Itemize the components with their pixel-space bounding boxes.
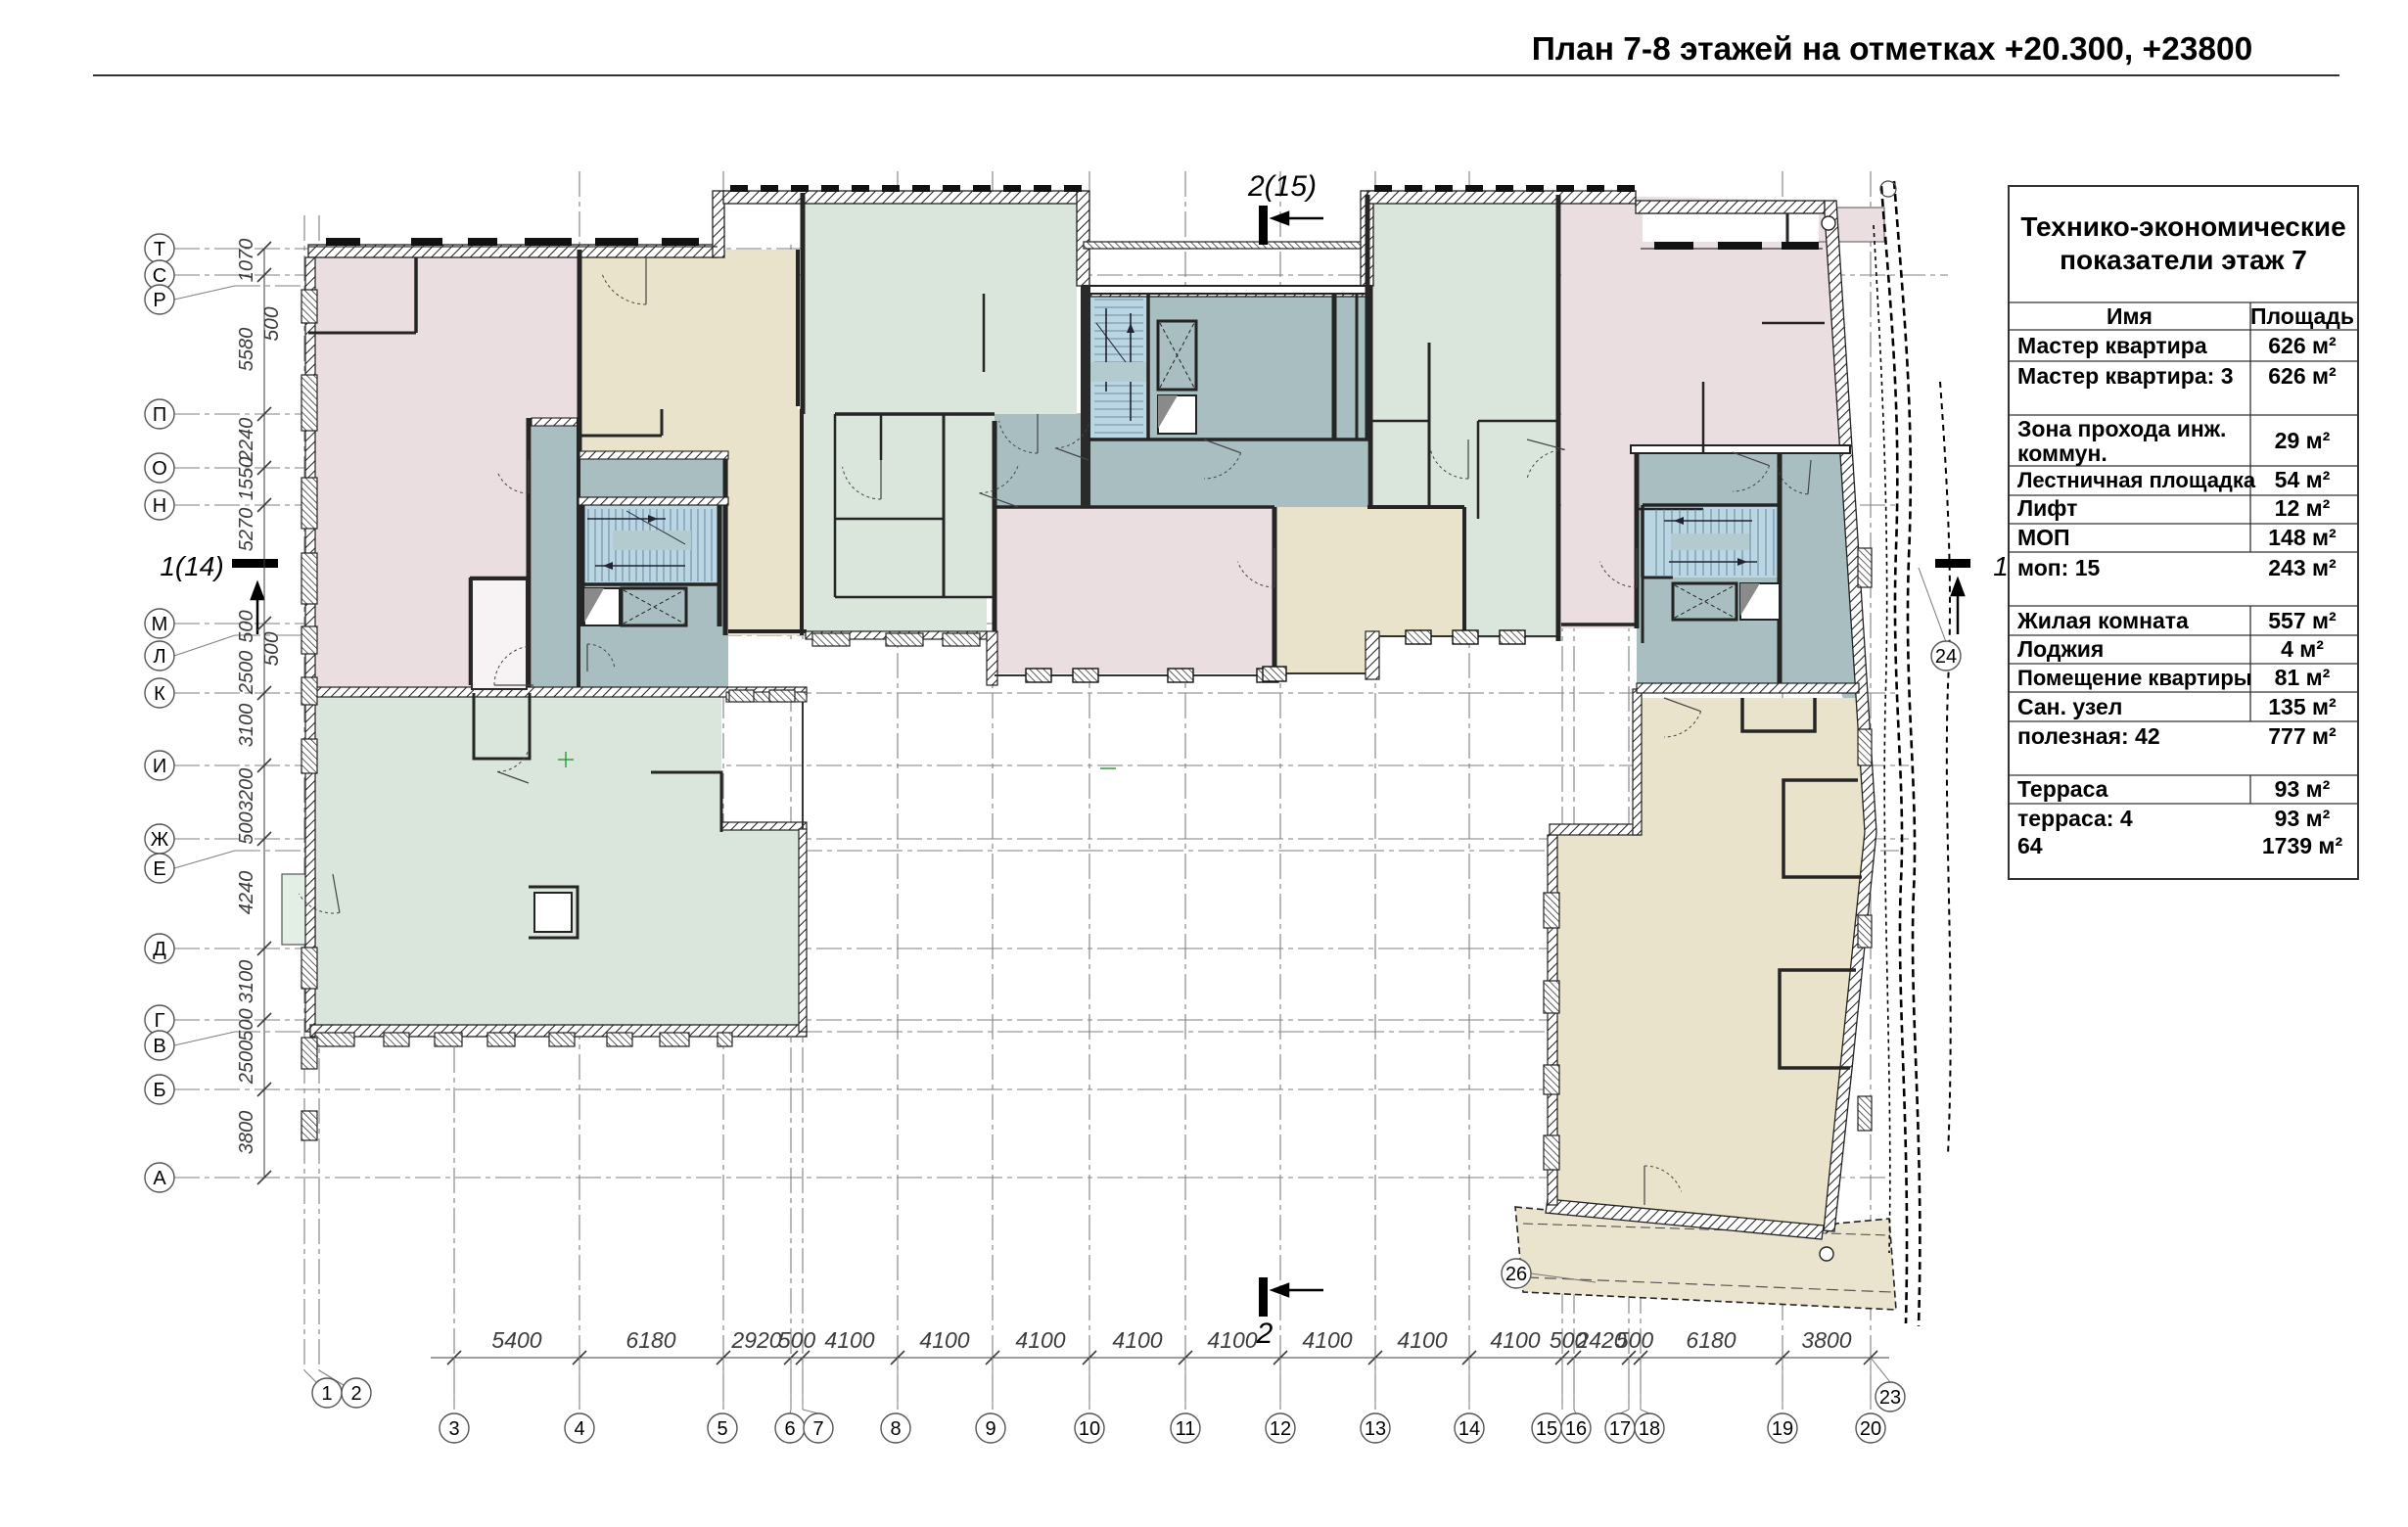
svg-text:5580: 5580 bbox=[236, 328, 257, 372]
svg-text:показатели этаж 7: показатели этаж 7 bbox=[2060, 245, 2307, 275]
svg-text:6: 6 bbox=[784, 1418, 795, 1440]
svg-text:500: 500 bbox=[260, 631, 283, 666]
svg-text:2: 2 bbox=[1256, 1318, 1273, 1350]
svg-text:29 м²: 29 м² bbox=[2275, 428, 2331, 453]
svg-text:3200: 3200 bbox=[236, 768, 257, 812]
svg-text:4100: 4100 bbox=[1112, 1327, 1162, 1353]
svg-text:моп: 15: моп: 15 bbox=[2017, 555, 2100, 580]
svg-text:12 м²: 12 м² bbox=[2275, 495, 2331, 521]
svg-text:2240: 2240 bbox=[236, 418, 257, 463]
svg-text:П: П bbox=[153, 404, 166, 426]
svg-text:Лоджия: Лоджия bbox=[2017, 636, 2104, 662]
svg-text:2: 2 bbox=[350, 1383, 361, 1405]
svg-text:А: А bbox=[153, 1168, 166, 1189]
svg-text:13: 13 bbox=[1365, 1418, 1386, 1440]
svg-text:3100: 3100 bbox=[236, 960, 257, 1004]
svg-text:3100: 3100 bbox=[236, 704, 257, 748]
svg-text:2(15): 2(15) bbox=[1247, 170, 1317, 203]
svg-text:4: 4 bbox=[574, 1418, 584, 1440]
svg-text:4 м²: 4 м² bbox=[2281, 636, 2324, 662]
svg-text:7: 7 bbox=[812, 1418, 823, 1440]
svg-text:О: О bbox=[152, 458, 167, 480]
svg-text:500: 500 bbox=[236, 610, 257, 642]
svg-text:Площадь: Площадь bbox=[2250, 303, 2354, 329]
svg-text:Лифт: Лифт bbox=[2017, 495, 2077, 521]
svg-text:Д: Д bbox=[153, 939, 166, 960]
svg-text:МОП: МОП bbox=[2017, 525, 2070, 550]
svg-text:терраса: 4: терраса: 4 bbox=[2017, 806, 2133, 831]
svg-text:Р: Р bbox=[153, 290, 165, 311]
svg-text:15: 15 bbox=[1536, 1418, 1557, 1440]
svg-text:Н: Н bbox=[153, 495, 166, 517]
svg-text:Помещение квартиры: Помещение квартиры bbox=[2017, 666, 2252, 690]
svg-text:4100: 4100 bbox=[1302, 1327, 1352, 1353]
svg-text:557 м²: 557 м² bbox=[2268, 608, 2337, 633]
svg-text:6180: 6180 bbox=[1686, 1327, 1736, 1353]
svg-text:6180: 6180 bbox=[625, 1327, 675, 1353]
svg-text:4100: 4100 bbox=[824, 1327, 874, 1353]
svg-text:И: И bbox=[153, 756, 166, 777]
svg-text:5270: 5270 bbox=[236, 508, 257, 552]
svg-text:К: К bbox=[154, 683, 165, 705]
svg-text:500: 500 bbox=[778, 1327, 816, 1353]
svg-text:8: 8 bbox=[890, 1418, 901, 1440]
svg-text:24: 24 bbox=[1935, 646, 1957, 668]
svg-text:4100: 4100 bbox=[919, 1327, 969, 1353]
svg-text:План 7-8 этажей на отметках +2: План 7-8 этажей на отметках +20.300, +23… bbox=[1532, 31, 2252, 68]
svg-text:Мастер квартира: 3: Мастер квартира: 3 bbox=[2017, 363, 2234, 389]
svg-text:4240: 4240 bbox=[236, 871, 257, 915]
svg-text:Мастер квартира: Мастер квартира bbox=[2017, 333, 2207, 358]
svg-text:М: М bbox=[152, 614, 168, 635]
svg-text:Сан. узел: Сан. узел bbox=[2017, 694, 2122, 719]
svg-text:Имя: Имя bbox=[2107, 303, 2153, 329]
svg-text:С: С bbox=[153, 265, 166, 287]
svg-text:Терраса: Терраса bbox=[2017, 776, 2108, 802]
svg-text:4100: 4100 bbox=[1207, 1327, 1257, 1353]
svg-text:54 м²: 54 м² bbox=[2275, 467, 2331, 492]
svg-text:17: 17 bbox=[1609, 1418, 1631, 1440]
svg-text:Б: Б bbox=[153, 1080, 165, 1101]
svg-text:3: 3 bbox=[448, 1418, 459, 1440]
svg-text:Лестничная площадка: Лестничная площадка bbox=[2017, 468, 2256, 492]
svg-text:2920: 2920 bbox=[730, 1327, 781, 1353]
svg-text:81 м²: 81 м² bbox=[2275, 665, 2331, 690]
svg-text:Е: Е bbox=[153, 858, 165, 880]
svg-text:Зона прохода инж.: Зона прохода инж. bbox=[2017, 416, 2226, 441]
svg-text:64: 64 bbox=[2017, 833, 2043, 858]
svg-text:2500: 2500 bbox=[236, 1041, 257, 1086]
svg-text:500: 500 bbox=[1616, 1327, 1654, 1353]
svg-text:полезная: 42: полезная: 42 bbox=[2017, 723, 2160, 749]
svg-text:12: 12 bbox=[1270, 1418, 1291, 1440]
svg-text:Технико-экономические: Технико-экономические bbox=[2020, 211, 2345, 242]
svg-text:19: 19 bbox=[1772, 1418, 1793, 1440]
svg-text:135 м²: 135 м² bbox=[2268, 694, 2337, 719]
svg-text:Жилая комната: Жилая комната bbox=[2016, 608, 2189, 633]
svg-text:4100: 4100 bbox=[1015, 1327, 1065, 1353]
svg-text:1(14): 1(14) bbox=[160, 551, 223, 581]
svg-text:Т: Т bbox=[154, 239, 165, 260]
svg-text:20: 20 bbox=[1860, 1418, 1881, 1440]
svg-text:500: 500 bbox=[236, 1008, 257, 1041]
svg-text:777 м²: 777 м² bbox=[2268, 723, 2337, 749]
svg-text:23: 23 bbox=[1879, 1387, 1901, 1409]
svg-text:1: 1 bbox=[321, 1383, 332, 1405]
svg-text:1739 м²: 1739 м² bbox=[2262, 833, 2343, 858]
svg-text:148 м²: 148 м² bbox=[2268, 525, 2337, 550]
svg-text:4100: 4100 bbox=[1490, 1327, 1540, 1353]
svg-text:1: 1 bbox=[1993, 551, 2009, 581]
svg-text:5400: 5400 bbox=[491, 1327, 541, 1353]
svg-text:11: 11 bbox=[1176, 1418, 1196, 1440]
svg-text:626 м²: 626 м² bbox=[2268, 363, 2337, 389]
svg-text:14: 14 bbox=[1459, 1418, 1480, 1440]
svg-text:16: 16 bbox=[1565, 1418, 1587, 1440]
svg-text:93 м²: 93 м² bbox=[2275, 776, 2331, 802]
svg-text:Г: Г bbox=[155, 1010, 165, 1032]
svg-text:1070: 1070 bbox=[236, 239, 257, 283]
svg-text:26: 26 bbox=[1505, 1264, 1527, 1285]
svg-text:Л: Л bbox=[153, 646, 165, 668]
svg-text:500: 500 bbox=[236, 811, 257, 844]
svg-text:3800: 3800 bbox=[236, 1111, 257, 1155]
svg-text:коммун.: коммун. bbox=[2017, 440, 2107, 466]
svg-text:3800: 3800 bbox=[1801, 1327, 1851, 1353]
svg-text:626 м²: 626 м² bbox=[2268, 333, 2337, 358]
svg-text:9: 9 bbox=[985, 1418, 996, 1440]
svg-text:Ж: Ж bbox=[151, 829, 169, 851]
svg-text:2500: 2500 bbox=[236, 651, 257, 696]
svg-text:4100: 4100 bbox=[1397, 1327, 1447, 1353]
svg-text:1550: 1550 bbox=[236, 457, 257, 501]
svg-text:18: 18 bbox=[1639, 1418, 1660, 1440]
svg-text:500: 500 bbox=[260, 306, 283, 341]
svg-text:93 м²: 93 м² bbox=[2275, 806, 2331, 831]
svg-text:В: В bbox=[153, 1036, 165, 1057]
svg-text:243 м²: 243 м² bbox=[2268, 555, 2337, 580]
svg-text:10: 10 bbox=[1079, 1418, 1100, 1440]
svg-text:5: 5 bbox=[717, 1418, 727, 1440]
